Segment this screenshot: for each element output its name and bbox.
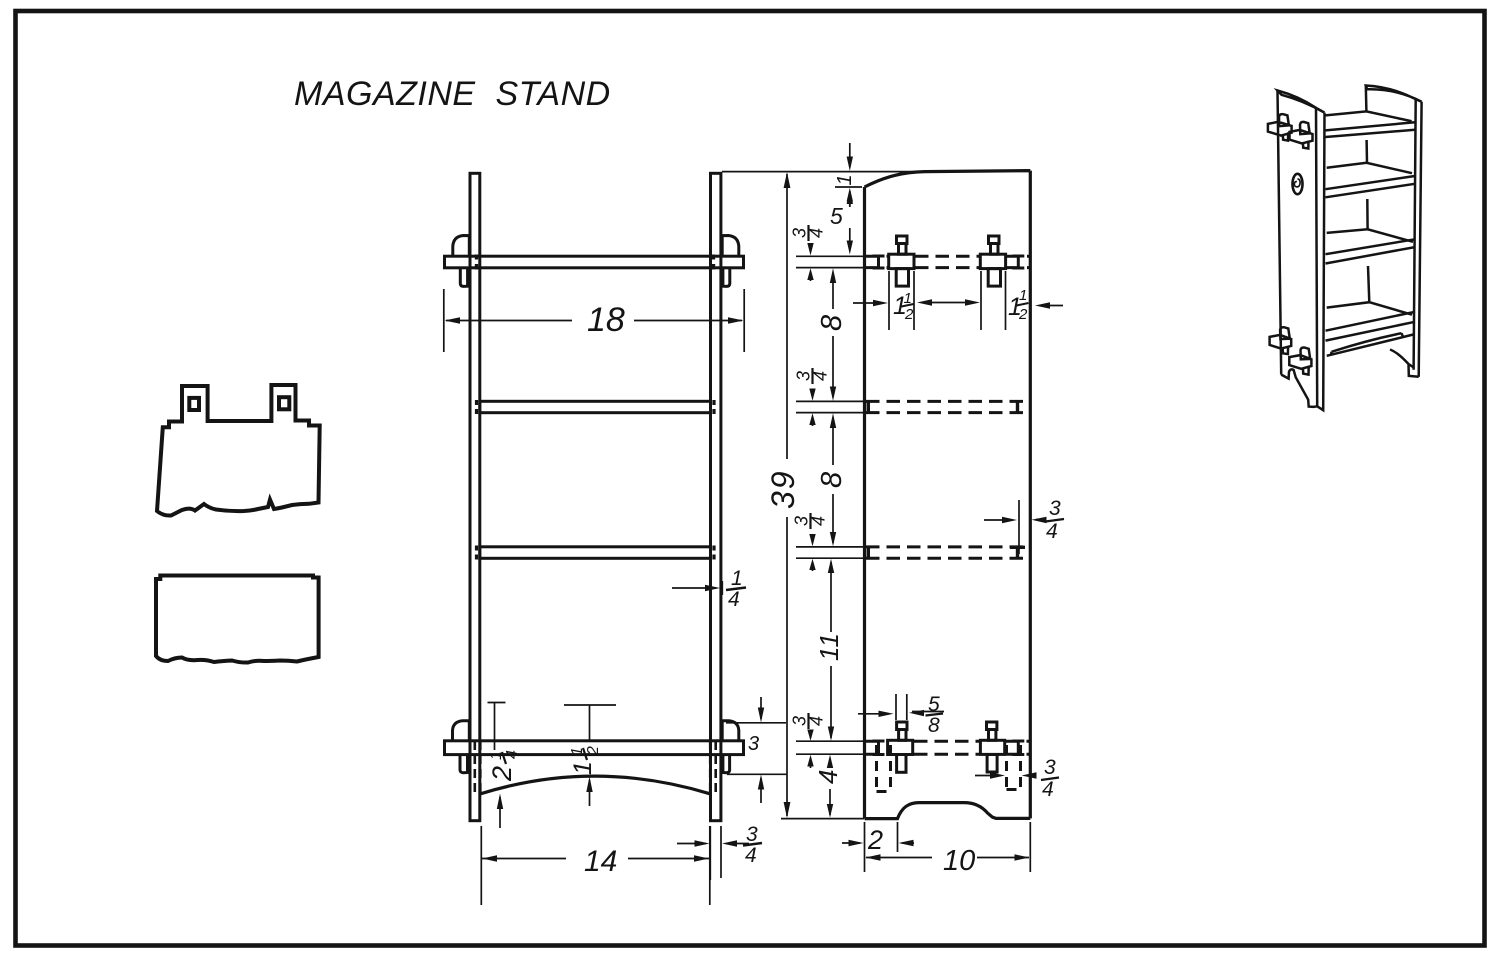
svg-text:1: 1 (834, 174, 856, 185)
svg-text:2: 2 (1018, 306, 1028, 323)
svg-text:18: 18 (587, 301, 625, 339)
svg-text:4: 4 (807, 228, 827, 238)
svg-text:3: 3 (748, 733, 759, 755)
svg-text:39: 39 (765, 469, 801, 509)
svg-text:8: 8 (816, 315, 848, 331)
svg-text:8: 8 (816, 472, 848, 488)
svg-text:3: 3 (1049, 497, 1061, 520)
svg-text:4: 4 (1046, 520, 1058, 543)
svg-text:4: 4 (813, 770, 843, 784)
svg-text:3: 3 (1044, 756, 1056, 779)
svg-text:4: 4 (504, 750, 521, 759)
svg-text:3: 3 (746, 823, 758, 846)
svg-text:8: 8 (928, 714, 940, 737)
svg-text:4: 4 (745, 844, 757, 867)
svg-text:4: 4 (728, 588, 740, 611)
svg-text:5: 5 (928, 693, 940, 716)
svg-text:MAGAZINE STAND: MAGAZINE STAND (294, 75, 611, 113)
svg-text:2: 2 (904, 306, 914, 323)
svg-text:4: 4 (807, 716, 827, 726)
svg-text:10: 10 (943, 845, 975, 877)
svg-text:2: 2 (867, 825, 883, 855)
svg-text:5: 5 (830, 203, 843, 229)
svg-text:2: 2 (487, 766, 517, 782)
svg-text:1: 1 (731, 567, 743, 590)
svg-text:4: 4 (809, 516, 829, 526)
svg-text:1: 1 (1019, 287, 1027, 304)
svg-text:11: 11 (814, 632, 844, 661)
svg-text:4: 4 (811, 371, 831, 381)
svg-text:2: 2 (585, 746, 602, 756)
svg-text:1: 1 (569, 761, 597, 775)
svg-text:14: 14 (584, 845, 617, 878)
svg-text:4: 4 (1042, 778, 1054, 801)
